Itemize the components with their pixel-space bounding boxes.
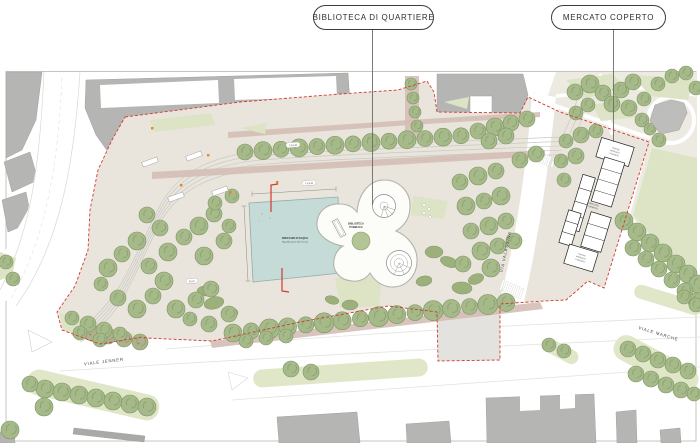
site-plan-drawing: SPECCHIO D'ACQUA Riqualificazione del me… (0, 0, 700, 443)
tram-stop-label: TRAM (302, 180, 316, 186)
pool-label: SPECCHIO D'ACQUA (282, 236, 308, 240)
library-label-line2: PUBBLICA (349, 225, 363, 229)
street-label-jenner: VIALE JENNER (84, 357, 124, 367)
svg-text:TRAM: TRAM (305, 181, 314, 186)
library-courtyard-tree (352, 232, 370, 250)
pool-sublabel: Riqualificazione del mercato (282, 241, 309, 244)
bus-stop-label: BUS (186, 278, 198, 284)
callout-mercato-label: MERCATO COPERTO (563, 13, 654, 22)
library-label-line1: BIBLIOTECA (348, 221, 364, 225)
callout-biblioteca-label: BIBLIOTECA DI QUARTIERE (313, 13, 435, 22)
callout-biblioteca: BIBLIOTECA DI QUARTIERE (313, 5, 434, 30)
callout-mercato: MERCATO COPERTO (551, 5, 666, 30)
svg-text:BUS: BUS (189, 279, 195, 283)
site-plan-page: SPECCHIO D'ACQUA Riqualificazione del me… (0, 0, 700, 443)
svg-text:TRAM: TRAM (289, 143, 298, 148)
tram-stop-label: TRAM (286, 142, 300, 148)
